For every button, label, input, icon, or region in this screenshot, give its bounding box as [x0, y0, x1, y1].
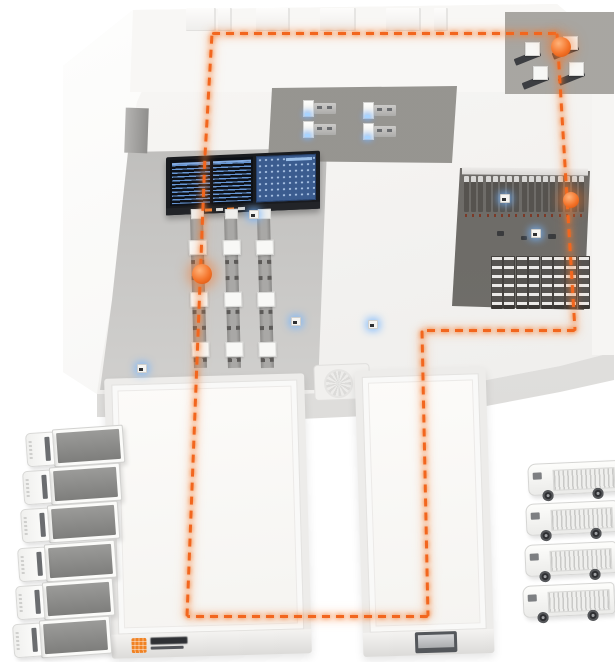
rack-marker [515, 214, 517, 217]
roof-unit [320, 8, 356, 31]
wheel-hub [595, 532, 598, 535]
truck-cab [12, 622, 42, 658]
truck-windshield [44, 437, 51, 461]
truck-windshield [39, 513, 46, 537]
machine-box [569, 62, 584, 76]
truck-windshield [36, 552, 43, 576]
wheel-hub [542, 616, 545, 619]
truck-grill [29, 441, 33, 459]
truck-grill [16, 632, 20, 650]
position-marker [192, 264, 212, 284]
truck-cargo [44, 540, 117, 583]
workstation [363, 102, 397, 120]
status-chip [238, 207, 245, 210]
van-windshield [533, 472, 542, 479]
van-wheel [590, 528, 601, 539]
rack-back-unit [478, 176, 483, 212]
logo-wordmark [150, 637, 187, 645]
rack-front-unit [516, 256, 528, 309]
dashboard-table-panel [170, 157, 253, 207]
rack-back-unit [486, 176, 491, 212]
parcel-box [225, 342, 243, 357]
van-wheel [542, 490, 553, 501]
rack-front-unit [578, 256, 590, 309]
truck-cab [20, 507, 50, 543]
led-dashboard [166, 151, 320, 216]
van-cargo-ribs [547, 589, 610, 613]
conveyor-foot [259, 310, 272, 314]
box-truck [17, 540, 115, 583]
rack-back-unit [529, 176, 534, 212]
rack-marker [544, 214, 546, 217]
rack-marker [479, 214, 481, 217]
truck-cargo-roof [48, 544, 113, 578]
conveyor-foot [225, 260, 238, 264]
van-cargo-ribs [550, 507, 613, 531]
van-wheel [587, 610, 598, 621]
sensor-screen [293, 321, 297, 324]
rack-front-unit [503, 256, 515, 309]
indicator-light [305, 134, 310, 137]
box-truck [12, 616, 110, 659]
brand-logo [131, 637, 187, 654]
rack-front-unit [491, 256, 503, 309]
fan-icon [324, 369, 354, 399]
truck-windshield [34, 590, 41, 614]
rack-back-unit [493, 176, 498, 212]
desk-slot [317, 127, 322, 130]
conveyor-foot [260, 326, 273, 330]
conveyor-foot [227, 326, 240, 330]
roof-unit [218, 8, 232, 31]
wall-doorway [124, 108, 149, 154]
van-windshield [531, 512, 540, 519]
rack-marker [537, 214, 539, 217]
rack-marker [465, 214, 467, 217]
delivery-van [524, 541, 615, 583]
conveyor-foot [258, 260, 271, 264]
workstation [363, 123, 397, 141]
box-truck [15, 578, 113, 621]
desk-slot [327, 127, 332, 130]
roof-unit [256, 8, 290, 31]
workstation [303, 100, 337, 118]
box-truck [22, 463, 120, 506]
van-wheel [592, 488, 603, 499]
iot-sensor [368, 320, 378, 329]
wheel-hub [545, 534, 548, 537]
rack-marker [580, 214, 582, 217]
rack-marker [573, 214, 575, 217]
truck-cab [17, 546, 47, 582]
truck-cargo [39, 616, 112, 659]
iot-sensor [500, 194, 510, 203]
desk-slot [387, 129, 392, 132]
wheel-hub [547, 494, 550, 497]
wheel-hub [597, 492, 600, 495]
van-windshield [528, 594, 537, 601]
route-segment [187, 615, 428, 618]
sorter-machine [514, 42, 544, 68]
iot-sensor [531, 229, 541, 238]
van-cargo-ribs [549, 548, 612, 572]
rack-front-unit [553, 256, 565, 309]
workstation [303, 121, 337, 139]
rack-back-unit [471, 176, 476, 212]
indicator-light [365, 136, 370, 139]
position-marker [563, 192, 579, 208]
iot-sensor [291, 317, 301, 326]
box-truck [20, 501, 118, 544]
indicator-light [365, 115, 370, 118]
van-wheel [540, 530, 551, 541]
wheel-hub [592, 614, 595, 617]
floor-crate [521, 236, 527, 240]
parcel-box [224, 292, 242, 307]
rack-marker [523, 214, 525, 217]
truck-windshield [31, 628, 38, 652]
truck-grill [21, 556, 25, 574]
desk-slot [377, 129, 382, 132]
rack-marker [501, 214, 503, 217]
sensor-screen [502, 198, 506, 201]
sorter-machine [522, 66, 552, 92]
status-chip [216, 208, 223, 211]
warehouse-scene [0, 0, 615, 662]
conveyor-foot [261, 358, 274, 362]
truck-cargo-roof [56, 429, 121, 463]
rack-marker [559, 214, 561, 217]
parcel-box [223, 240, 241, 255]
van-wheel [539, 571, 550, 582]
roof-unit [434, 8, 448, 31]
wheel-hub [594, 573, 597, 576]
route-segment [212, 32, 557, 35]
roof-unit [386, 8, 421, 31]
desk-slot [387, 108, 392, 111]
rack-marker [472, 214, 474, 217]
sensor-screen [139, 368, 143, 371]
truck-cab [25, 431, 55, 467]
sensor-screen [533, 233, 537, 236]
wheel-hub [544, 575, 547, 578]
sensor-screen [251, 214, 255, 217]
truck-grill [26, 479, 30, 497]
logo-mark-icon [131, 638, 146, 653]
rack-marker [508, 214, 510, 217]
rack-back-unit [579, 176, 584, 212]
iot-sensor [249, 210, 259, 219]
iot-sensor [137, 364, 147, 373]
roof-unit [186, 8, 216, 31]
rack-front-unit [528, 256, 540, 309]
conveyor-foot [226, 310, 239, 314]
truck-grill [19, 594, 23, 612]
dashboard-screen [170, 154, 316, 206]
route-segment [422, 329, 575, 332]
delivery-van [525, 500, 615, 542]
wing-front-face [111, 629, 312, 659]
rack-back-unit [522, 176, 527, 212]
van-body [524, 541, 615, 577]
dashboard-data-column [213, 160, 251, 203]
truck-cargo [52, 425, 125, 468]
truck-cargo [47, 501, 120, 544]
truck-grill [24, 517, 28, 535]
van-wheel [589, 569, 600, 580]
truck-cargo-roof [46, 582, 111, 616]
van-wheel [537, 612, 548, 623]
truck-cab [22, 469, 52, 505]
truck-cargo-roof [51, 505, 116, 539]
conveyor-foot [259, 276, 272, 280]
machine-box [525, 42, 540, 56]
desk-slot [377, 108, 382, 111]
truck-cargo-roof [53, 467, 118, 501]
truck-cargo-roof [43, 620, 108, 654]
conveyor-foot [228, 358, 241, 362]
rack-marker [494, 214, 496, 217]
rack-front-unit [541, 256, 553, 309]
logo-subtext [151, 646, 184, 650]
wing-roof [111, 379, 304, 634]
rack-back-unit [536, 176, 541, 212]
wing-front-face [363, 629, 495, 657]
truck-cargo [42, 578, 115, 621]
indicator-light [305, 113, 310, 116]
truck-cargo [49, 463, 122, 506]
sensor-screen [370, 324, 374, 327]
rack-marker [487, 214, 489, 217]
floor-crate [497, 231, 504, 236]
dashboard-panel-header [286, 157, 312, 161]
truck-cab [15, 584, 45, 620]
rack-back-unit [464, 176, 469, 212]
machine-box [533, 66, 548, 80]
rack-marker [551, 214, 553, 217]
delivery-van [527, 460, 615, 502]
parcel-box [256, 240, 274, 255]
box-truck [25, 425, 123, 468]
parcel-box [258, 342, 276, 357]
van-windshield [530, 553, 539, 560]
rack-back-unit [550, 176, 555, 212]
dock-door-shutter [418, 634, 454, 648]
desk-slot [327, 106, 332, 109]
rack-marker [530, 214, 532, 217]
conveyor-cap [258, 209, 271, 219]
dashboard-chart-panel [256, 154, 316, 203]
van-body [525, 500, 615, 536]
position-marker [551, 37, 571, 57]
conveyor-foot [226, 276, 239, 280]
van-cargo-ribs [552, 467, 615, 491]
delivery-van [522, 582, 614, 624]
van-body [522, 582, 615, 618]
parcel-box [257, 292, 275, 307]
rack-back-unit [514, 176, 519, 212]
desk-slot [317, 106, 322, 109]
conveyor-cap [225, 209, 238, 219]
rack-back-unit [543, 176, 548, 212]
floor-crate [548, 234, 556, 239]
truck-windshield [41, 475, 48, 499]
dock-door [415, 631, 458, 653]
